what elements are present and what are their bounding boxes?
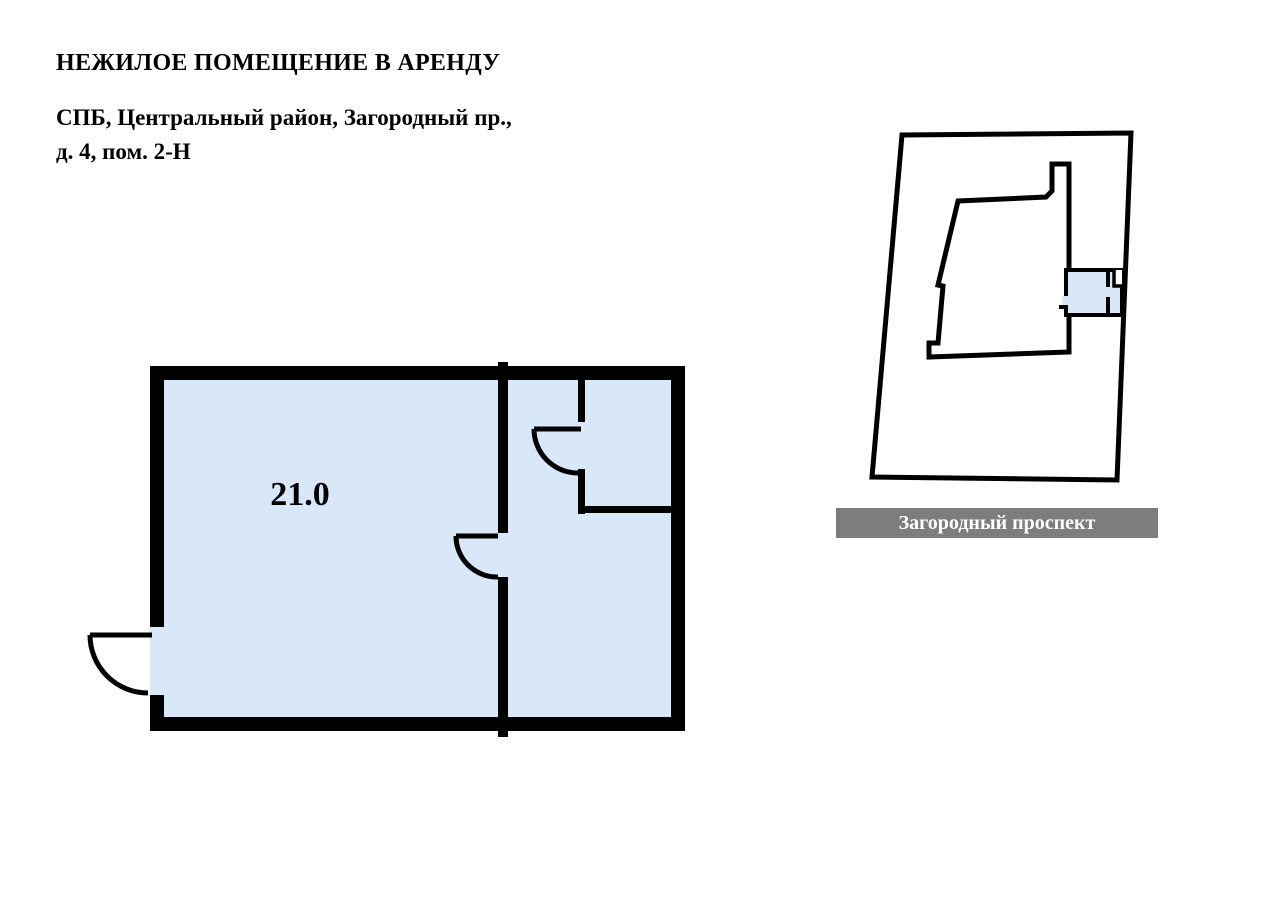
street-name-label: Загородный проспект: [899, 512, 1096, 535]
page-title: НЕЖИЛОЕ ПОМЕЩЕНИЕ В АРЕНДУ: [56, 50, 500, 77]
small-room-wall-horizontal: [578, 506, 674, 513]
address-block: СПБ, Центральный район, Загородный пр., …: [56, 101, 512, 169]
room-area-label: 21.0: [250, 476, 350, 514]
address-line-1: СПБ, Центральный район, Загородный пр.,: [56, 101, 512, 135]
small-room-wall-vertical-upper: [578, 376, 585, 422]
interior-door-opening: [495, 533, 511, 577]
listing-page: НЕЖИЛОЕ ПОМЕЩЕНИЕ В АРЕНДУ СПБ, Централь…: [0, 0, 1280, 905]
entrance-door-opening: [150, 627, 164, 695]
entrance-door-swing-arc: [90, 635, 148, 693]
street-name-bar: Загородный проспект: [836, 508, 1158, 538]
address-line-2: д. 4, пом. 2-Н: [56, 135, 512, 169]
floorplan-outer-walls: [157, 373, 678, 724]
